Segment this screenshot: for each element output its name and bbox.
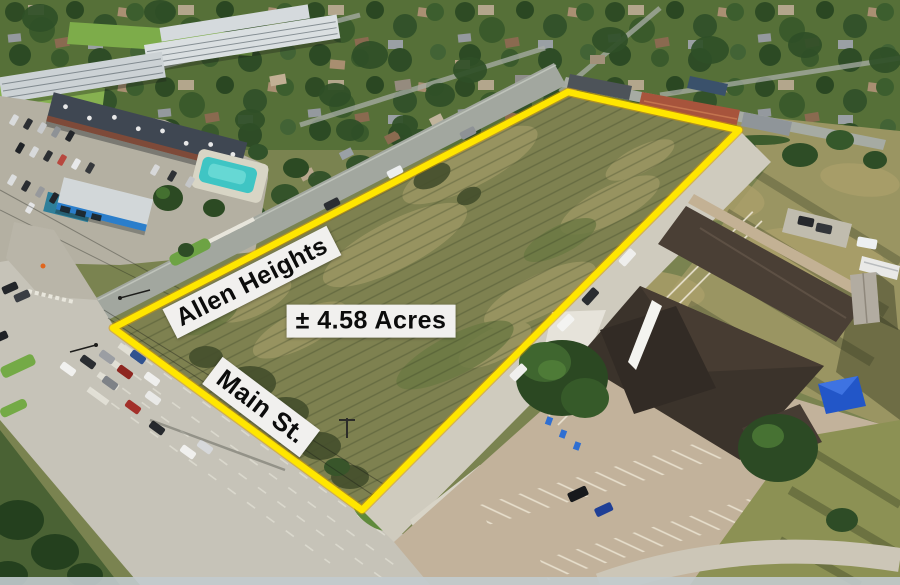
acreage-label: ± 4.58 Acres	[287, 305, 456, 338]
photo-edge-strip	[0, 577, 900, 585]
aerial-photo-canvas	[0, 0, 900, 585]
aerial-property-photo: Allen Heights Main St. ± 4.58 Acres	[0, 0, 900, 585]
